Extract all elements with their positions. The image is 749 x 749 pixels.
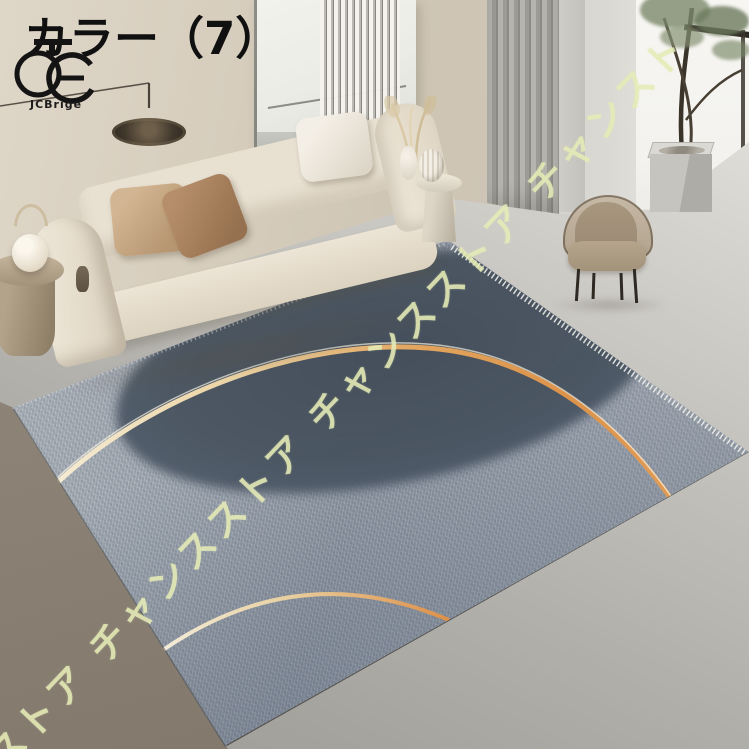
vase-ridged <box>419 149 444 182</box>
brand-name: JCBrige <box>30 98 82 111</box>
floor-lamp-disc <box>112 118 186 146</box>
brand-logo: JCBrige <box>6 34 116 118</box>
vase-gourd <box>400 146 417 180</box>
ball-lamp <box>12 234 48 272</box>
accent-chair <box>560 193 660 305</box>
rug-arc-small <box>163 594 449 650</box>
side-table-right-base <box>422 184 456 242</box>
pillow-white <box>294 110 374 183</box>
chair-leg <box>620 273 624 300</box>
chair-seat <box>568 241 646 271</box>
chair-leg <box>592 273 596 299</box>
tree-foliage <box>695 6 749 36</box>
chair-leg <box>575 269 580 301</box>
product-photo-living-room: ストア チャンスストア チャンスストア チャンスト カラー（7） JCBrige <box>0 0 749 749</box>
small-dark-vase <box>76 266 89 292</box>
chair-leg <box>633 269 638 303</box>
tree-foliage <box>712 40 749 60</box>
